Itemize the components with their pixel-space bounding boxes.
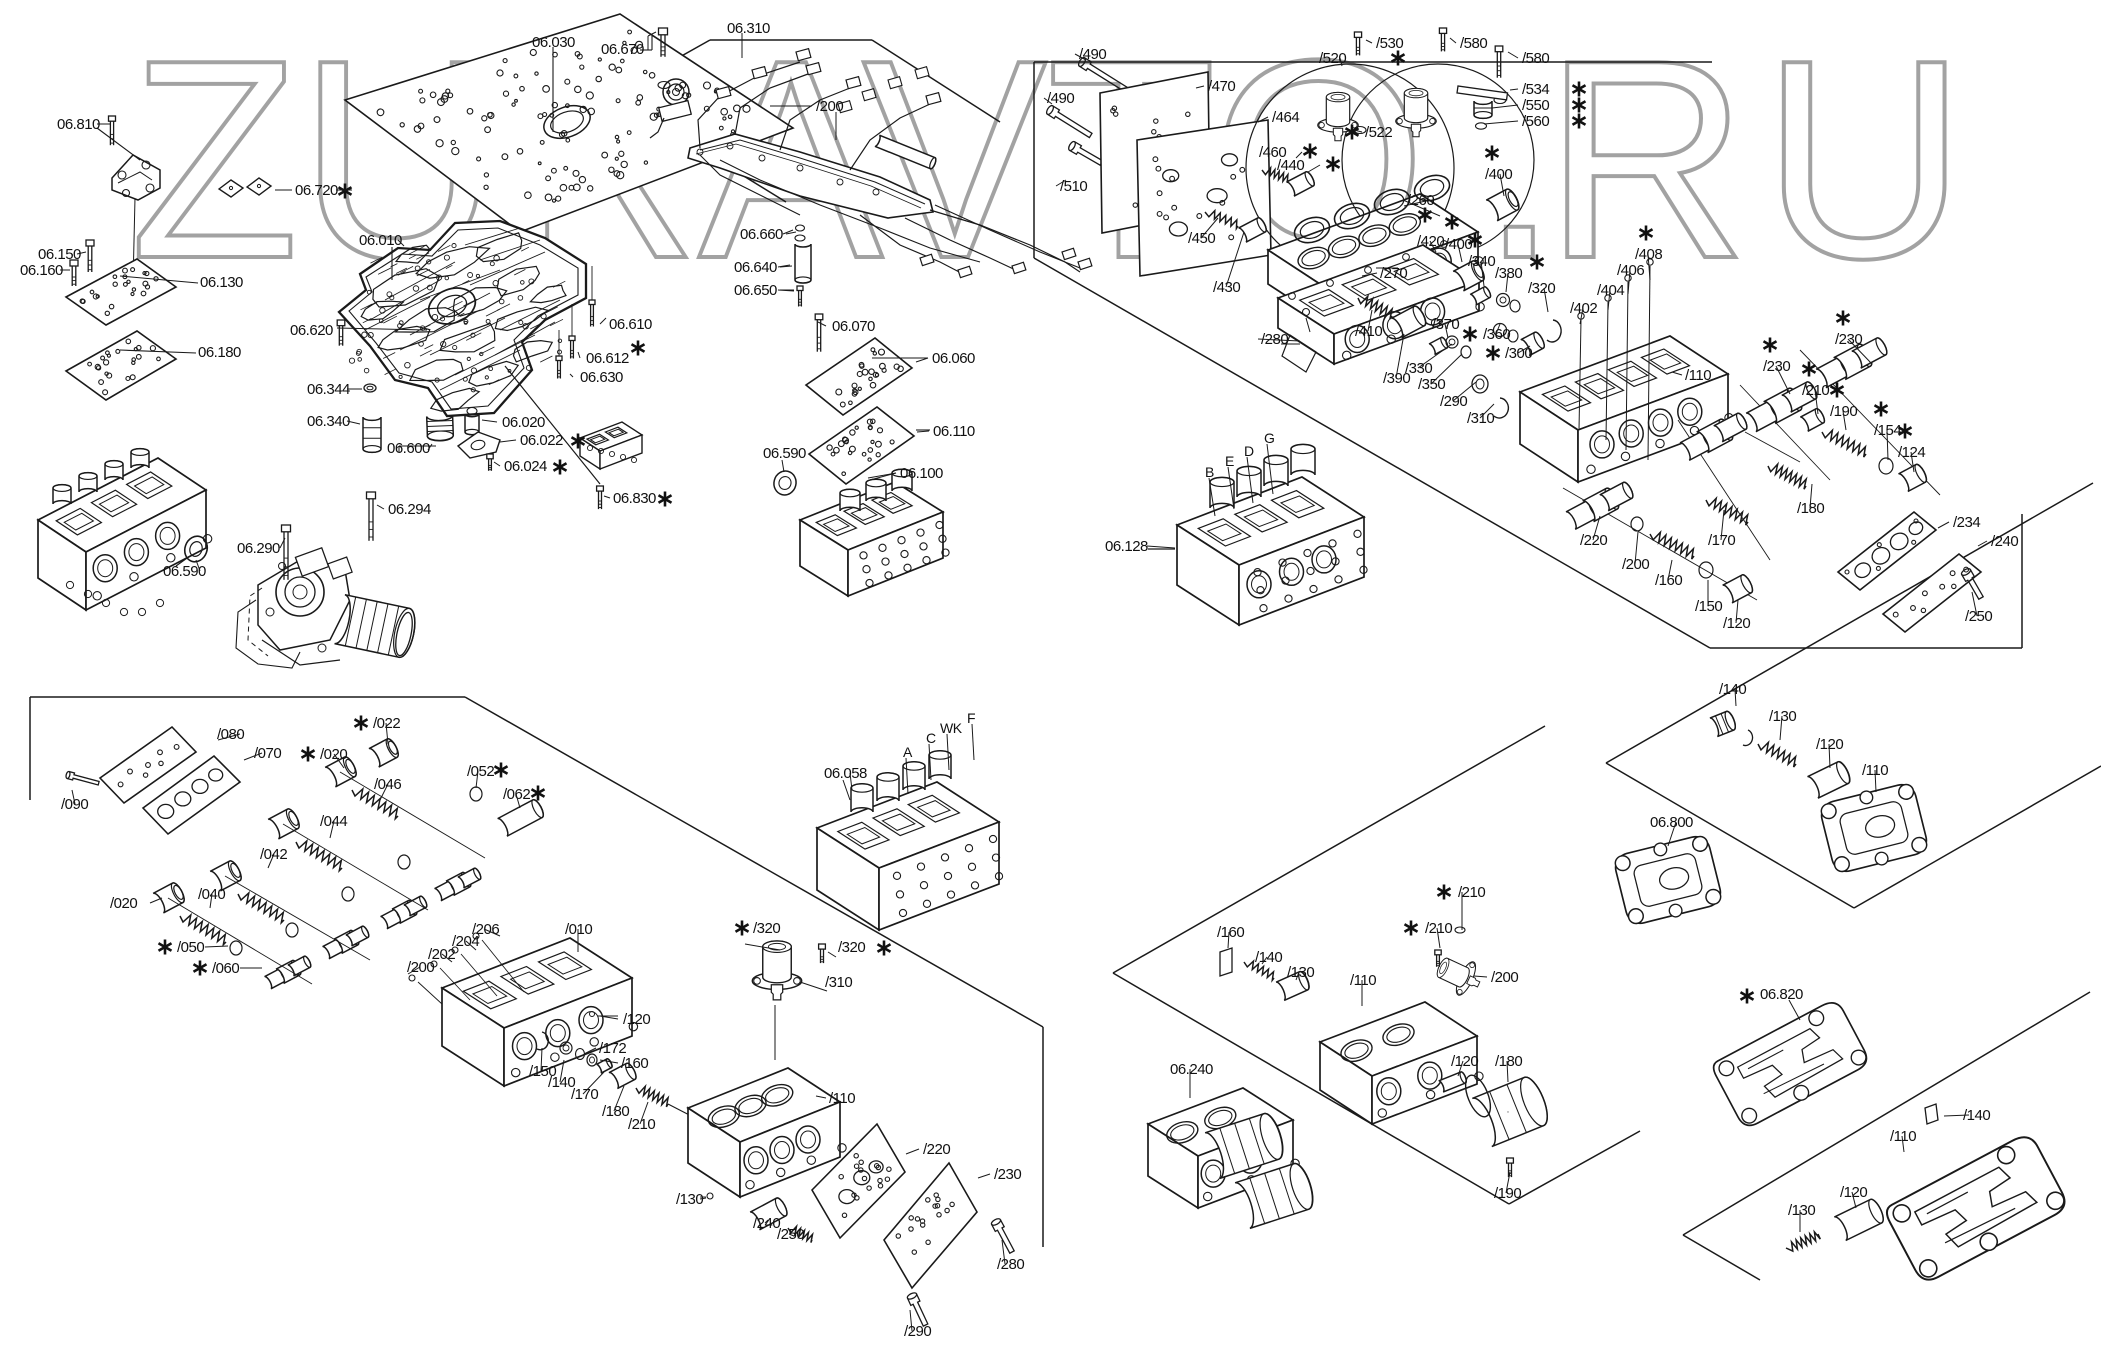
svg-text:06.660: 06.660: [740, 226, 783, 243]
svg-text:06.590: 06.590: [763, 445, 806, 462]
svg-text:/180: /180: [1495, 1053, 1522, 1070]
svg-text:/490: /490: [1047, 90, 1074, 107]
svg-text:06.600: 06.600: [387, 440, 430, 457]
svg-text:/140: /140: [1255, 949, 1282, 966]
svg-text:06.650: 06.650: [734, 282, 777, 299]
svg-text:06.810: 06.810: [57, 116, 100, 133]
svg-text:/290: /290: [904, 1323, 931, 1340]
svg-text:/530: /530: [1376, 35, 1403, 52]
svg-text:/470: /470: [1208, 78, 1235, 95]
svg-text:/360: /360: [1483, 326, 1510, 343]
svg-text:06.058: 06.058: [824, 765, 867, 782]
svg-text:06.630: 06.630: [580, 369, 623, 386]
svg-text:/430: /430: [1213, 279, 1240, 296]
svg-text:/204: /204: [452, 933, 479, 950]
svg-text:/320: /320: [1528, 280, 1555, 297]
svg-text:E: E: [1225, 453, 1234, 469]
svg-text:06.010: 06.010: [359, 232, 402, 249]
svg-text:/280: /280: [997, 1256, 1024, 1273]
svg-text:06.310: 06.310: [727, 20, 770, 37]
svg-text:B: B: [1205, 464, 1214, 480]
svg-text:R: R: [1544, 1, 1748, 317]
svg-text:06.620: 06.620: [290, 322, 333, 339]
svg-text:/220: /220: [1580, 532, 1607, 549]
svg-text:/320: /320: [838, 939, 865, 956]
svg-text:06.128: 06.128: [1105, 538, 1148, 555]
svg-text:06.290: 06.290: [237, 540, 280, 557]
svg-text:06.830: 06.830: [613, 490, 656, 507]
svg-text:06.610: 06.610: [609, 316, 652, 333]
svg-text:/370: /370: [1432, 316, 1459, 333]
svg-text:/062: /062: [503, 786, 530, 803]
svg-text:/490: /490: [1079, 46, 1106, 63]
svg-text:A: A: [903, 744, 913, 760]
svg-text:C: C: [926, 730, 936, 746]
svg-text:06.340: 06.340: [307, 413, 350, 430]
svg-text:/130: /130: [1287, 964, 1314, 981]
svg-text:/130: /130: [1769, 708, 1796, 725]
svg-text:06.180: 06.180: [198, 344, 241, 361]
svg-text:U: U: [1762, 1, 1966, 317]
svg-text:06.030: 06.030: [532, 34, 575, 51]
svg-text:/050: /050: [177, 939, 204, 956]
svg-text:/110: /110: [1350, 972, 1376, 989]
svg-text:/290: /290: [1440, 393, 1467, 410]
svg-text:06.800: 06.800: [1650, 814, 1693, 831]
svg-text:/380: /380: [1495, 265, 1522, 282]
svg-text:/510: /510: [1060, 178, 1087, 195]
svg-text:06.294: 06.294: [388, 501, 431, 518]
svg-text:/580: /580: [1522, 50, 1549, 67]
svg-text:/010: /010: [565, 921, 592, 938]
svg-text:/130: /130: [1788, 1202, 1815, 1219]
svg-text:/070: /070: [254, 745, 281, 762]
svg-text:/260: /260: [1407, 192, 1434, 209]
svg-text:G: G: [1264, 430, 1274, 446]
svg-text:/110: /110: [829, 1090, 855, 1107]
svg-text:/140: /140: [1719, 681, 1746, 698]
svg-text:06.022: 06.022: [520, 432, 563, 449]
svg-text:/180: /180: [602, 1103, 629, 1120]
svg-text:/200: /200: [816, 98, 843, 115]
svg-text:/464: /464: [1272, 109, 1299, 126]
svg-text:/052: /052: [467, 763, 494, 780]
svg-text:/270: /270: [1380, 265, 1407, 282]
svg-text:/170: /170: [571, 1086, 598, 1103]
svg-text:/310: /310: [1467, 410, 1494, 427]
svg-text:/550: /550: [1522, 97, 1549, 114]
svg-text:06.820: 06.820: [1760, 986, 1803, 1003]
svg-text:06.130: 06.130: [200, 274, 243, 291]
svg-text:/400: /400: [1445, 236, 1472, 253]
svg-text:/160: /160: [621, 1055, 648, 1072]
svg-text:/230: /230: [994, 1166, 1021, 1183]
svg-text:06.150: 06.150: [38, 246, 81, 263]
svg-text:/090: /090: [61, 796, 88, 813]
svg-text:06.070: 06.070: [832, 318, 875, 335]
svg-text:/580: /580: [1460, 35, 1487, 52]
svg-text:/520: /520: [1319, 50, 1346, 67]
svg-text:06.060: 06.060: [932, 350, 975, 367]
svg-text:/120: /120: [623, 1011, 650, 1028]
svg-text:/400: /400: [1485, 166, 1512, 183]
svg-text:/020: /020: [110, 895, 137, 912]
svg-text:06.720: 06.720: [295, 182, 338, 199]
svg-text:/200: /200: [407, 959, 434, 976]
svg-text:06.344: 06.344: [307, 381, 350, 398]
svg-text:/234: /234: [1953, 514, 1980, 531]
svg-text:WK: WK: [940, 720, 963, 736]
svg-text:06.100: 06.100: [900, 465, 943, 482]
svg-text:/440: /440: [1277, 157, 1304, 174]
svg-text:/060: /060: [212, 960, 239, 977]
svg-text:/160: /160: [1217, 924, 1244, 941]
svg-text:/402: /402: [1570, 300, 1597, 317]
svg-text:/240: /240: [1991, 533, 2018, 550]
svg-text:/534: /534: [1522, 81, 1549, 98]
svg-text:D: D: [1244, 443, 1254, 459]
svg-text:/110: /110: [1685, 367, 1711, 384]
svg-text:06.160: 06.160: [20, 262, 63, 279]
svg-text:06.640: 06.640: [734, 259, 777, 276]
svg-text:/450: /450: [1188, 230, 1215, 247]
svg-text:/250: /250: [1965, 608, 1992, 625]
svg-text:/320: /320: [753, 920, 780, 937]
svg-text:/220: /220: [923, 1141, 950, 1158]
svg-text:/150: /150: [1695, 598, 1722, 615]
svg-text:F: F: [967, 710, 975, 726]
svg-text:06.670: 06.670: [601, 41, 644, 58]
svg-text:/120: /120: [1451, 1053, 1478, 1070]
svg-text:/404: /404: [1597, 282, 1624, 299]
svg-text:/130: /130: [676, 1191, 703, 1208]
svg-text:06.240: 06.240: [1170, 1061, 1213, 1078]
svg-text:/080: /080: [217, 726, 244, 743]
svg-text:06.020: 06.020: [502, 414, 545, 431]
svg-text:/406: /406: [1617, 262, 1644, 279]
svg-text:06.110: 06.110: [933, 423, 975, 440]
svg-text:/200: /200: [1491, 969, 1518, 986]
svg-text:06.590: 06.590: [163, 563, 206, 580]
svg-text:06.612: 06.612: [586, 350, 629, 367]
svg-text:/190: /190: [1494, 1185, 1521, 1202]
svg-text:/350: /350: [1418, 376, 1445, 393]
svg-text:/210: /210: [1425, 920, 1452, 937]
svg-text:/310: /310: [825, 974, 852, 991]
svg-text:06.024: 06.024: [504, 458, 547, 475]
svg-text:/560: /560: [1522, 113, 1549, 130]
svg-text:/522: /522: [1365, 124, 1392, 141]
